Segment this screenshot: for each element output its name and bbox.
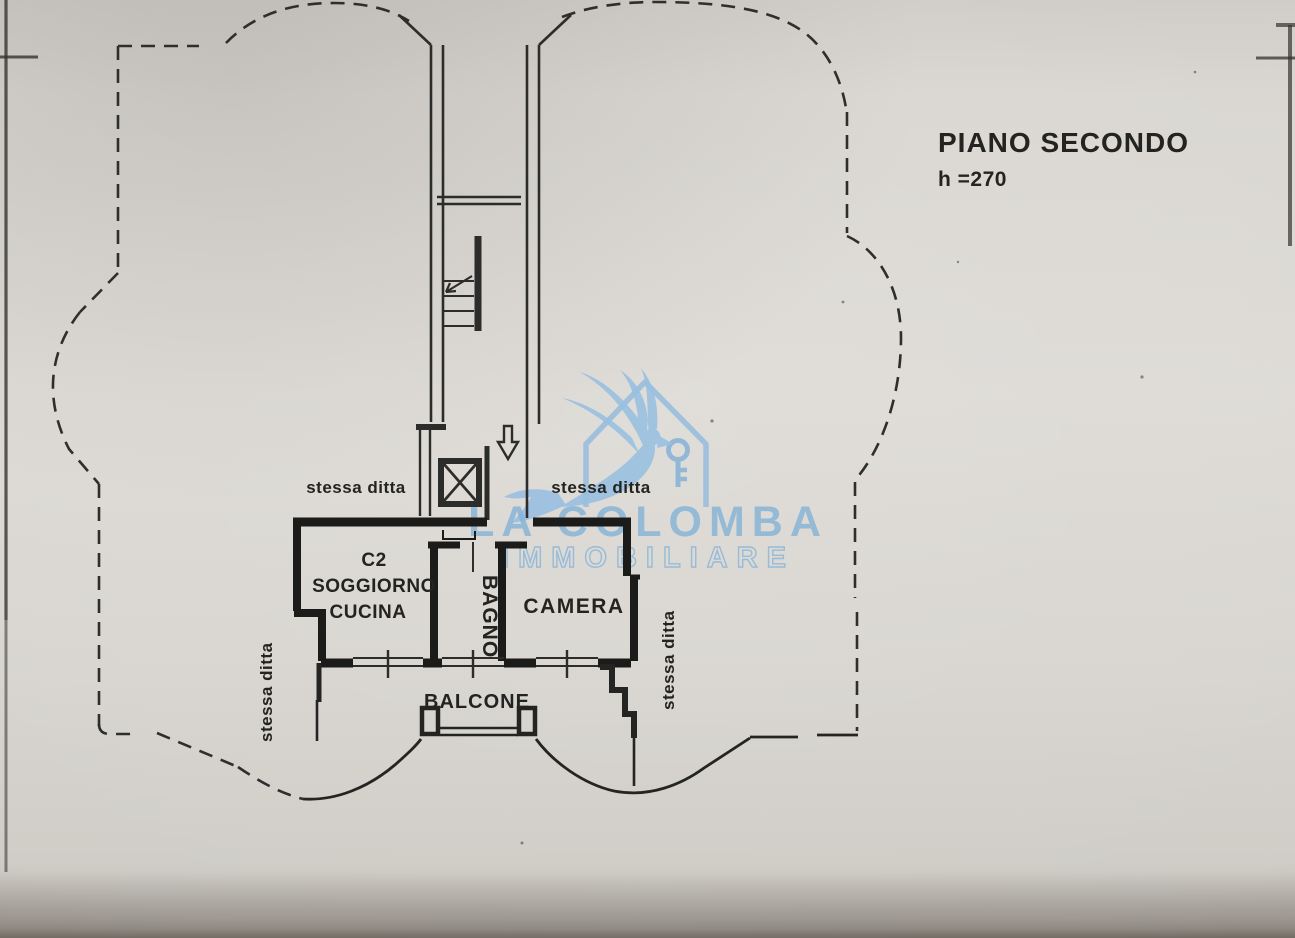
room-label-camera: CAMERA — [523, 595, 624, 618]
floor-plan-drawing: LA COLOMBA IMMOBILIARE — [0, 0, 1295, 938]
room-label-bagno: BAGNO — [478, 575, 501, 658]
stairs-direction-arrow-icon — [446, 276, 472, 292]
room-label-balcone: BALCONE — [424, 691, 530, 713]
floor-plan-photo: LA COLOMBA IMMOBILIARE — [0, 0, 1295, 938]
boundary-label-right-vertical: stessa ditta — [659, 610, 678, 710]
building-outline-dashed — [53, 2, 901, 799]
boundary-label-left-vertical: stessa ditta — [257, 642, 276, 742]
boundary-label-right-horizontal: stessa ditta — [551, 478, 651, 497]
elevator-icon — [441, 461, 479, 504]
entrance-arrow-icon — [498, 426, 518, 459]
boundary-label-left-horizontal: stessa ditta — [306, 478, 406, 497]
dust-specks — [521, 71, 1197, 845]
watermark-subtitle: IMMOBILIARE — [501, 542, 795, 574]
room-label-unit-code: C2 — [361, 550, 386, 571]
plan-title: PIANO SECONDO — [938, 127, 1189, 158]
room-label-cucina: CUCINA — [330, 602, 407, 623]
stairwell — [399, 15, 571, 518]
windows — [353, 650, 598, 678]
room-label-soggiorno: SOGGIORNO — [312, 576, 436, 597]
balcony-and-neighbour-walls — [303, 663, 858, 799]
watermark-name: LA COLOMBA — [468, 498, 828, 546]
plan-height-note: h =270 — [938, 168, 1007, 191]
key-icon — [669, 441, 688, 488]
